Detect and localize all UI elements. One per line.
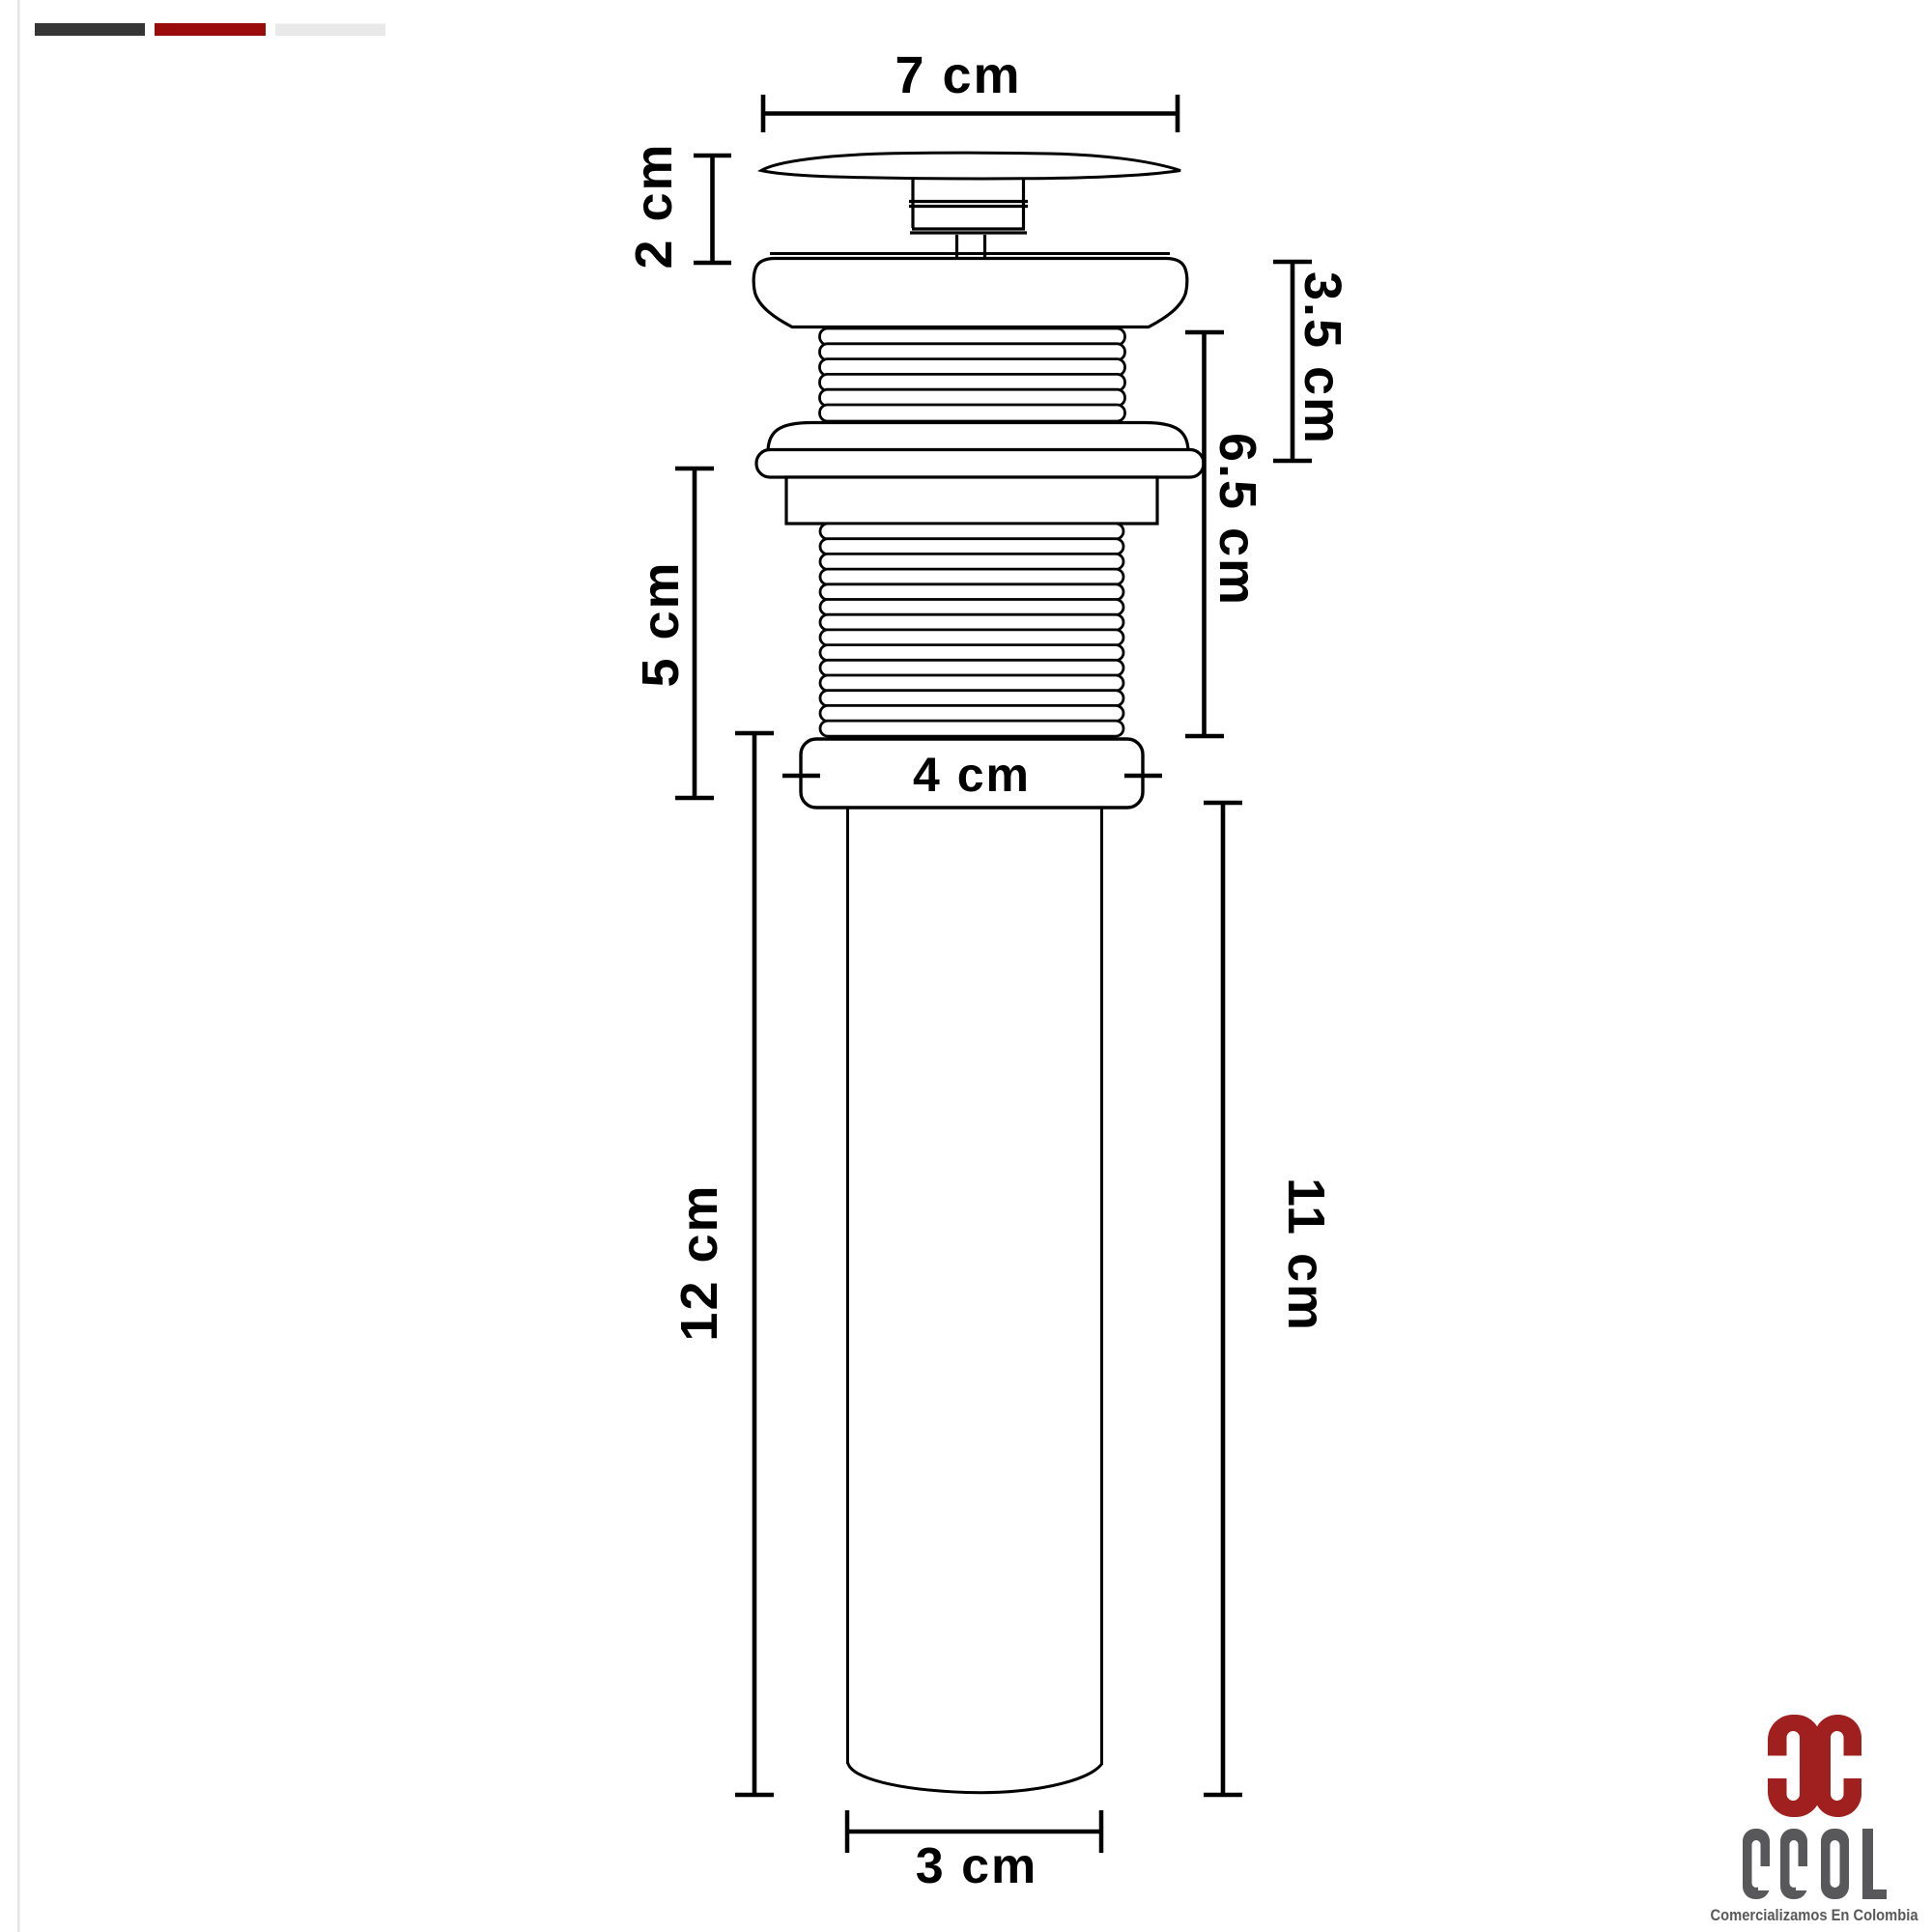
svg-text:Comercializamos En Colombia: Comercializamos En Colombia [1711, 1906, 1918, 1924]
svg-text:5 cm: 5 cm [632, 560, 690, 687]
svg-text:6.5 cm: 6.5 cm [1208, 433, 1266, 607]
svg-text:12 cm: 12 cm [670, 1183, 728, 1341]
svg-text:3.5 cm: 3.5 cm [1293, 271, 1351, 445]
svg-text:11 cm: 11 cm [1277, 1178, 1335, 1332]
svg-text:7 cm: 7 cm [895, 46, 1021, 104]
svg-text:2 cm: 2 cm [625, 142, 683, 269]
svg-text:3 cm: 3 cm [916, 1838, 1038, 1894]
svg-text:4 cm: 4 cm [913, 748, 1031, 802]
